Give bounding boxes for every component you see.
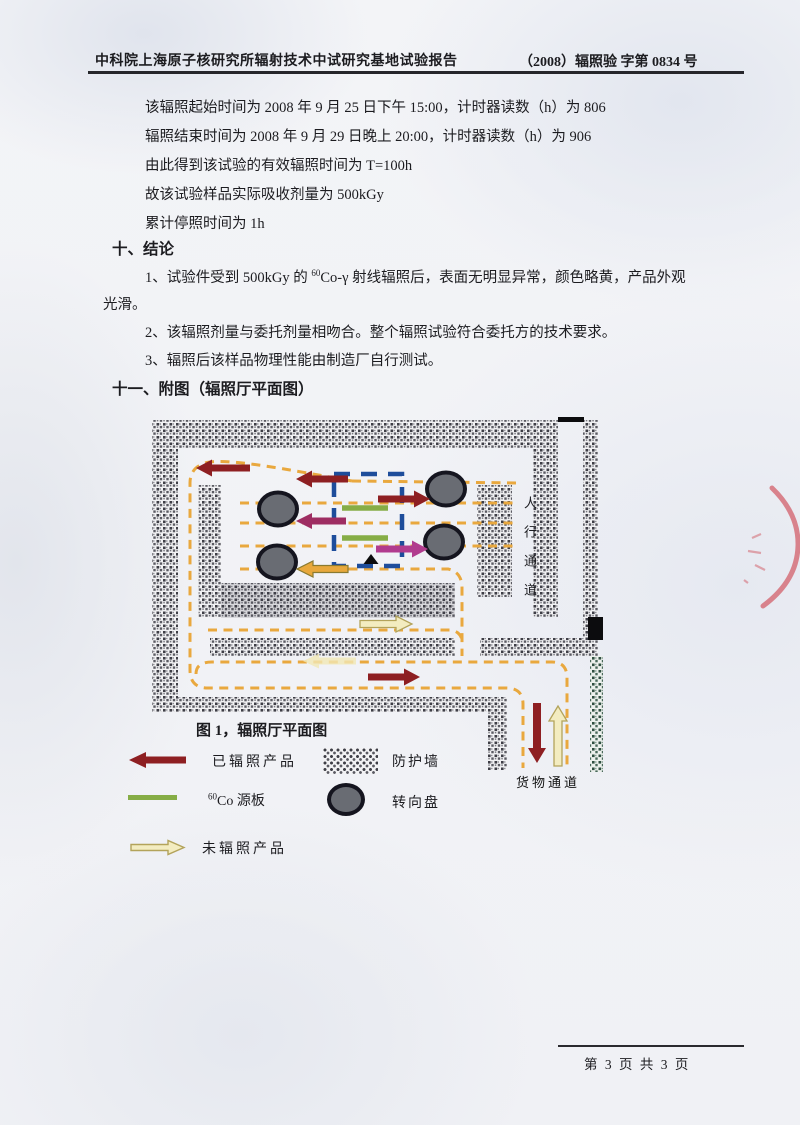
- orange-arrow-left: [297, 561, 348, 577]
- red-stamp: [715, 462, 800, 627]
- body-line-1: 该辐照起始时间为 2008 年 9 月 25 日下午 15:00，计时器读数（h…: [145, 96, 606, 117]
- cargo-channel-label: 货物通道: [516, 772, 580, 791]
- section-10-title: 十、结论: [112, 237, 174, 259]
- conclusion-item-2: 2、该辐照剂量与委托剂量相吻合。整个辐照试验符合委托方的技术要求。: [145, 321, 616, 342]
- legend-co60-label: 60Co 源板: [208, 790, 265, 810]
- purple-arrow-left: [296, 513, 346, 529]
- conclusion-item-1-cont: 光滑。: [103, 293, 147, 314]
- pedestrian-channel-label: 人行通道: [520, 496, 539, 612]
- body-line-5: 累计停照时间为 1h: [145, 212, 265, 233]
- body-line-3: 由此得到该试验的有效辐照时间为 T=100h: [145, 154, 412, 175]
- footer-page-number: 第 3 页 共 3 页: [584, 1053, 690, 1073]
- conclusion-item-3: 3、辐照后该样品物理性能由制造厂自行测试。: [145, 349, 442, 370]
- legend-unirradiated-arrow-icon: [130, 839, 186, 856]
- header-doc-number: （2008）辐照验 字第 0834 号: [519, 51, 698, 71]
- conclusion-item-1-post: Co-γ 射线辐照后，表面无明显异常，颜色略黄，产品外观: [320, 270, 685, 286]
- legend-shield-wall-label: 防护墙: [392, 751, 440, 771]
- triangle-marker: [364, 554, 379, 564]
- conclusion-item-1-pre: 1、试验件受到 500kGy 的: [145, 270, 311, 286]
- legend-irradiated-label: 已辐照产品: [212, 751, 297, 771]
- section-11-title: 十一、附图（辐照厅平面图）: [112, 377, 314, 399]
- legend-shield-wall-swatch: [323, 748, 378, 774]
- figure-caption: 图 1，辐照厅平面图: [196, 719, 327, 740]
- legend-source-plate-icon: [128, 795, 177, 800]
- body-line-2: 辐照结束时间为 2008 年 9 月 29 日晚上 20:00，计时器读数（h）…: [145, 125, 591, 146]
- legend-turntable-label: 转向盘: [392, 792, 440, 812]
- legend-irradiated-arrow-icon: [128, 751, 188, 769]
- legend-co60-superscript: 60: [208, 791, 217, 801]
- footer-rule: [558, 1045, 744, 1047]
- body-line-4: 故该试验样品实际吸收剂量为 500kGy: [145, 183, 384, 204]
- scanned-report-page: { "header": { "left": "中科院上海原子核研究所辐射技术中试…: [0, 0, 800, 1125]
- green-wall: [590, 656, 603, 772]
- turntables: [258, 473, 465, 579]
- co60-superscript: 60: [311, 268, 320, 278]
- unirradiated-arrow-up: [549, 706, 567, 766]
- header-title: 中科院上海原子核研究所辐射技术中试研究基地试验报告: [95, 50, 458, 70]
- floor-plan-diagram: [138, 412, 618, 807]
- irradiated-arrow-down: [528, 703, 546, 763]
- header-rule: [88, 71, 744, 74]
- legend-unirradiated-label: 未辐照产品: [202, 838, 287, 858]
- irradiated-arrow-right-2: [368, 669, 420, 686]
- conclusion-item-1: 1、试验件受到 500kGy 的 60Co-γ 射线辐照后，表面无明显异常，颜色…: [145, 266, 686, 287]
- legend-turntable-icon: [327, 783, 365, 816]
